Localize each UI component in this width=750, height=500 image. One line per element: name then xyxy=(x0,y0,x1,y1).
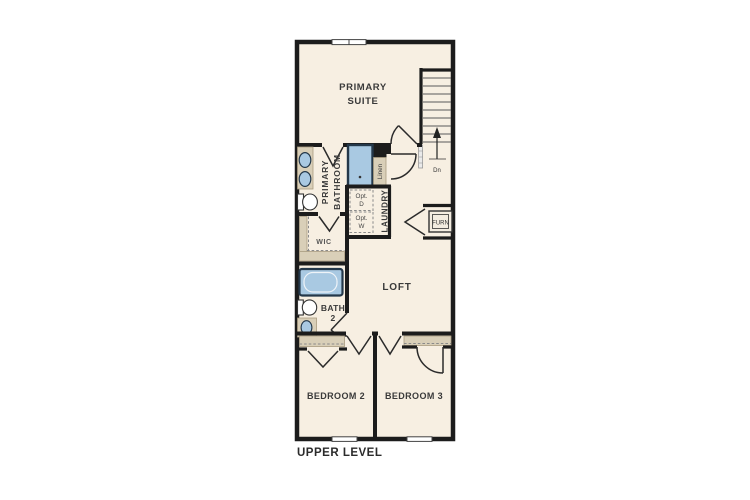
sink xyxy=(299,153,311,168)
wall-block-hall xyxy=(384,145,391,154)
primary-suite-label-line2: SUITE xyxy=(348,96,379,107)
sink xyxy=(299,172,311,187)
opt-dryer-line2: D xyxy=(359,201,364,208)
opt-dryer-line1: Opt. xyxy=(356,193,368,200)
shower-drain xyxy=(359,176,362,179)
primary-suite-window xyxy=(332,40,366,45)
stair-railing xyxy=(419,145,423,168)
opt-washer-line2: W xyxy=(359,223,365,230)
linen-closet: Linen xyxy=(374,158,387,187)
laundry-label: LAUNDRY xyxy=(381,189,390,232)
primary-bathroom-label-line1: PRIMARY xyxy=(320,160,330,204)
furnace-label: FURN xyxy=(432,221,449,227)
primary-suite-label-line1: PRIMARY xyxy=(339,82,387,93)
opt-washer-line1: Opt. xyxy=(356,215,368,222)
floorplan-canvas: Dn PRIMARY SUITE PRIMARY BATHROOM xyxy=(0,0,750,500)
primary-bathroom-label-line2: BATHROOM xyxy=(332,154,342,210)
floorplan: Dn PRIMARY SUITE PRIMARY BATHROOM xyxy=(0,0,750,500)
bedroom3-window xyxy=(407,437,432,442)
plan-caption: UPPER LEVEL xyxy=(297,447,382,459)
closet-shelf xyxy=(300,336,345,347)
loft-label: LOFT xyxy=(382,282,411,293)
toilet xyxy=(298,194,318,210)
linen-label: Linen xyxy=(377,163,384,179)
bedroom2-window xyxy=(332,437,357,442)
bedroom3-label: BEDROOM 3 xyxy=(385,391,443,401)
wic-label: WIC xyxy=(316,239,331,246)
bedroom2-label: BEDROOM 2 xyxy=(307,391,365,401)
closet-shelf xyxy=(404,336,451,346)
shower xyxy=(348,145,373,186)
bath2-label-line2: 2 xyxy=(330,313,335,323)
bath2-label-line1: BATH xyxy=(321,303,345,313)
toilet xyxy=(298,300,317,315)
stairs-direction-label: Dn xyxy=(433,168,441,174)
wic-shelf-bottom xyxy=(300,252,345,262)
